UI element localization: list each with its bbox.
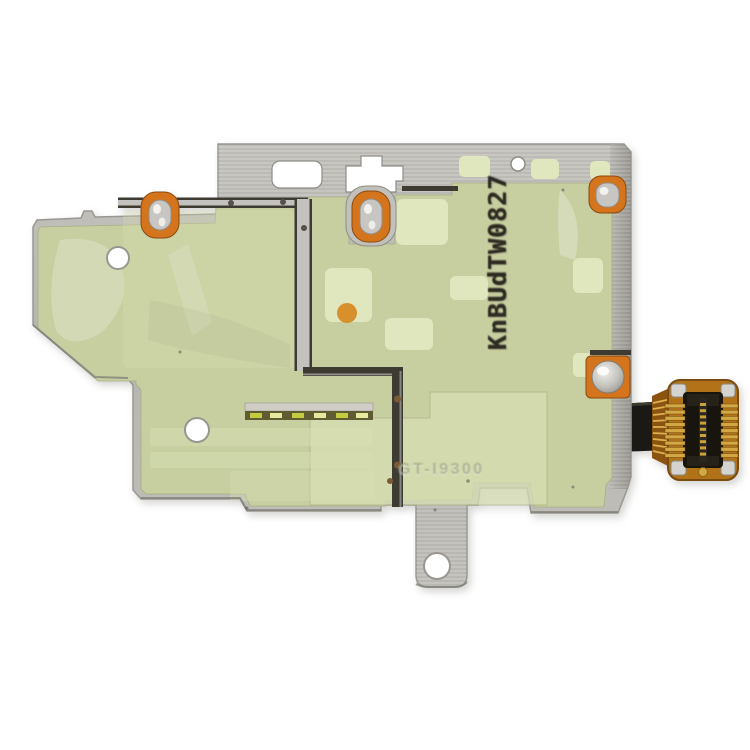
embossed-model-text: GT-I9300 [398,461,523,483]
board-connector [665,380,738,480]
top-strip-hole [511,157,525,171]
shield-plate [33,143,632,590]
screw-grommet-top-left [141,192,179,238]
film-patch [396,199,448,245]
screw-grommet-mid-right [586,356,630,398]
product-photo: KnBUdTW0827 GT-I9300 [0,0,750,750]
stamp-code-text: KnBUdTW0827 [484,166,512,358]
seam-top-right [402,186,458,191]
connector-center-contacts [700,403,706,456]
alignment-hole-left [107,247,129,269]
tab-hole [424,553,450,579]
connector-corner-bracket [721,461,735,475]
screw-grommet-top-middle [346,186,396,246]
screw-grommet-top-right [589,176,626,213]
film-patch [531,159,559,179]
orange-dot [337,303,357,323]
card-reader-module [33,143,738,590]
pcb-sliver [245,403,373,420]
card-reader-module-illustration [0,0,750,750]
seam-right [590,350,631,355]
connector-gold-dot [699,468,708,477]
alignment-hole-center [185,418,209,442]
connector-corner-bracket [721,384,735,397]
rectangular-cutout [272,161,322,188]
film-patch [385,318,433,350]
film-patch [573,258,603,293]
